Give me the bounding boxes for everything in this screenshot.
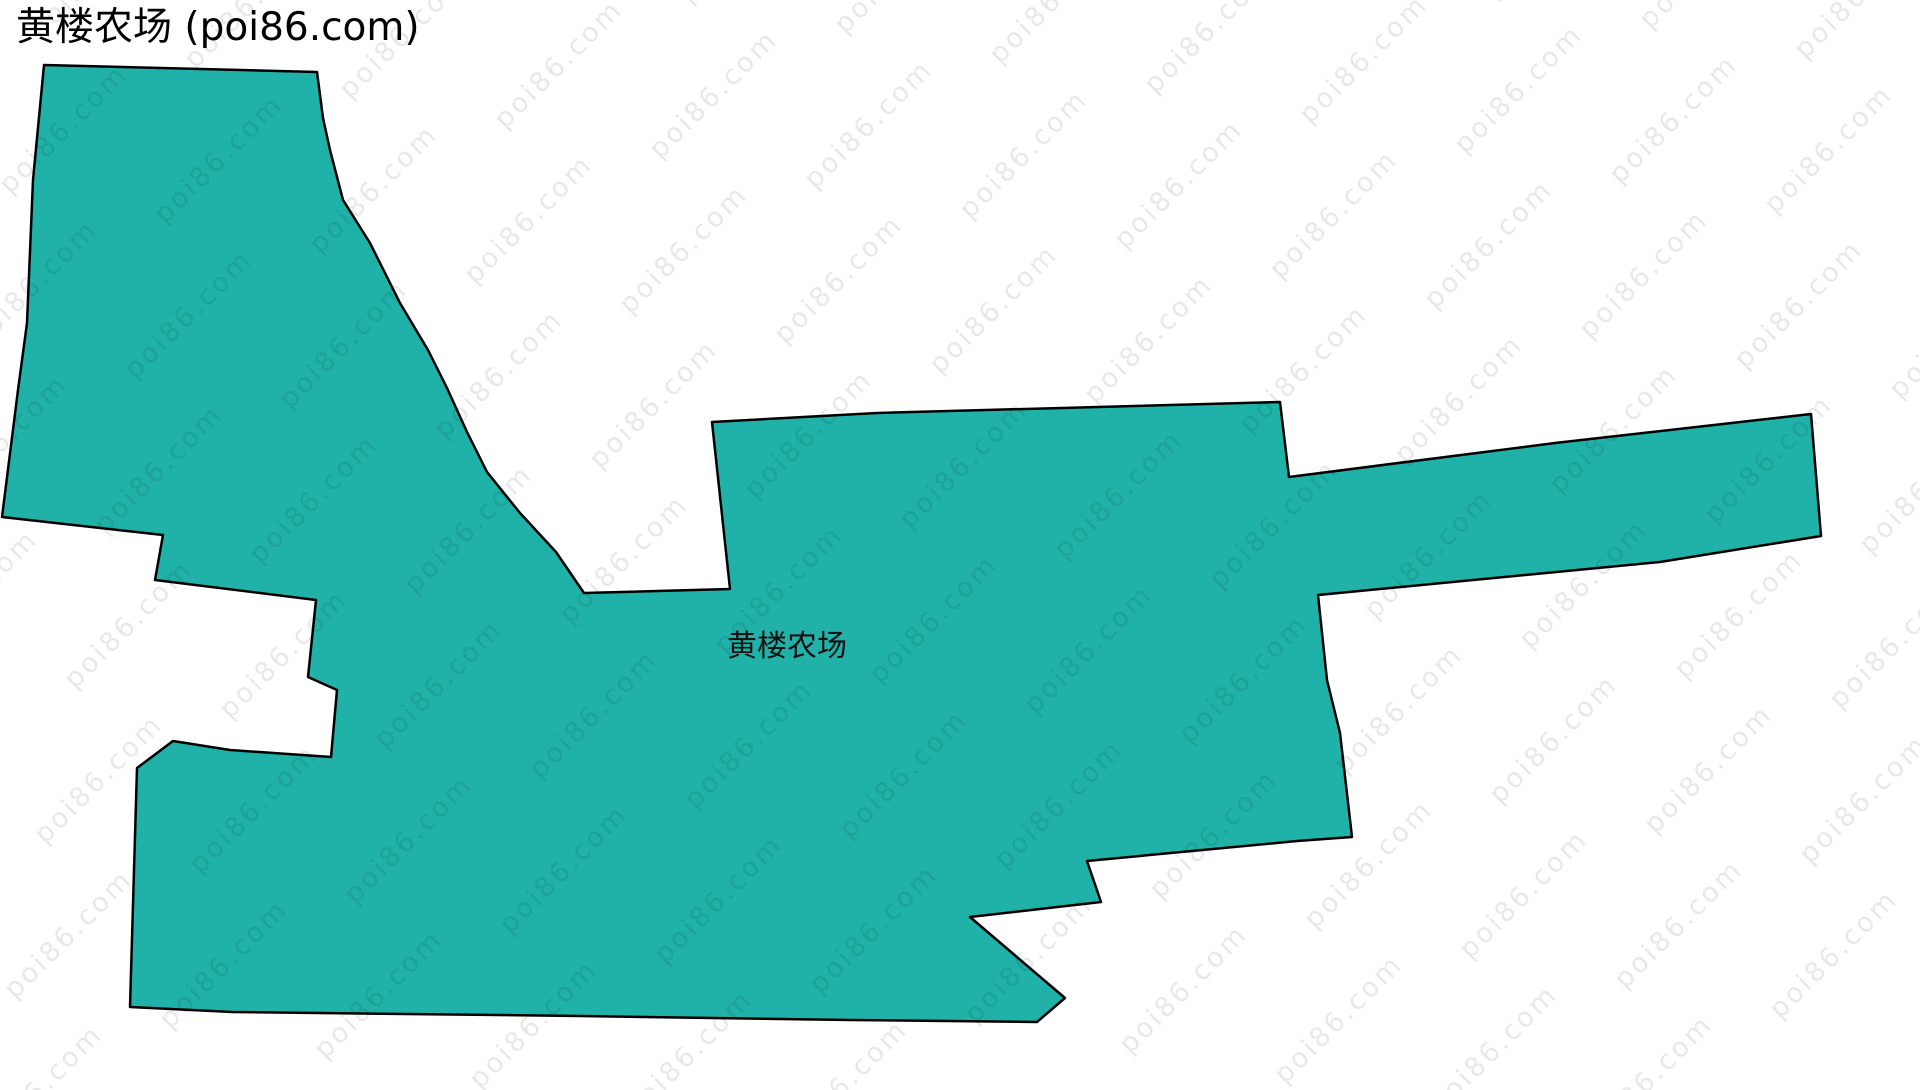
map-canvas: poi86.compoi86.compoi86.compoi86.compoi8… <box>0 0 1920 1090</box>
watermark-text: poi86.com <box>1078 269 1219 410</box>
watermark-text: poi86.com <box>1453 824 1594 965</box>
watermark-text: poi86.com <box>0 1019 109 1090</box>
watermark-text: poi86.com <box>58 554 199 695</box>
watermark-text: poi86.com <box>1578 1009 1719 1090</box>
watermark-text: poi86.com <box>1328 639 1469 780</box>
watermark-text: poi86.com <box>1263 144 1404 285</box>
watermark-text: poi86.com <box>1418 174 1559 315</box>
watermark-text: poi86.com <box>923 239 1064 380</box>
watermark-text: poi86.com <box>613 179 754 320</box>
watermark-text: poi86.com <box>1113 919 1254 1060</box>
map-page: poi86.compoi86.compoi86.compoi86.compoi8… <box>0 0 1920 1090</box>
watermark-text: poi86.com <box>1483 669 1624 810</box>
watermark-text: poi86.com <box>1788 0 1920 65</box>
watermark-text: poi86.com <box>1883 264 1920 405</box>
watermark-text: poi86.com <box>1913 109 1920 250</box>
watermark-text: poi86.com <box>428 304 569 445</box>
watermark-text: poi86.com <box>673 0 814 10</box>
region-label: 黄楼农场 <box>727 629 847 664</box>
watermark-text: poi86.com <box>1603 49 1744 190</box>
watermark-text: poi86.com <box>1233 299 1374 440</box>
page-title: 黄楼农场 (poi86.com) <box>16 6 420 51</box>
watermark-text: poi86.com <box>1728 234 1869 375</box>
watermark-text: poi86.com <box>1423 979 1564 1090</box>
watermark-text: poi86.com <box>1758 79 1899 220</box>
watermark-text: poi86.com <box>0 864 139 1005</box>
watermark-text: poi86.com <box>583 334 724 475</box>
watermark-text: poi86.com <box>0 524 44 665</box>
watermark-text: poi86.com <box>953 84 1094 225</box>
watermark-text: poi86.com <box>1478 0 1619 5</box>
watermark-text: poi86.com <box>828 0 969 40</box>
watermark-text: poi86.com <box>488 0 629 135</box>
watermark-text: poi86.com <box>1138 0 1279 100</box>
watermark-text: poi86.com <box>768 209 909 350</box>
watermark-text: poi86.com <box>1573 204 1714 345</box>
watermark-text: poi86.com <box>1268 949 1409 1090</box>
watermark-text: poi86.com <box>1293 0 1434 130</box>
watermark-text: poi86.com <box>798 54 939 195</box>
watermark-text: poi86.com <box>1108 114 1249 255</box>
watermark-text: poi86.com <box>983 0 1124 70</box>
watermark-text: poi86.com <box>458 149 599 290</box>
watermark-text: poi86.com <box>773 1014 914 1090</box>
watermark-text: poi86.com <box>1763 884 1904 1025</box>
watermark-text: poi86.com <box>1668 544 1809 685</box>
watermark-text: poi86.com <box>643 24 784 165</box>
watermark-text: poi86.com <box>1638 699 1779 840</box>
watermark-text: poi86.com <box>1823 574 1920 715</box>
watermark-text: poi86.com <box>1853 419 1920 560</box>
watermark-text: poi86.com <box>1633 0 1774 35</box>
watermark-text: poi86.com <box>1448 19 1589 160</box>
watermark-text: poi86.com <box>1793 729 1920 870</box>
watermark-text: poi86.com <box>1608 854 1749 995</box>
